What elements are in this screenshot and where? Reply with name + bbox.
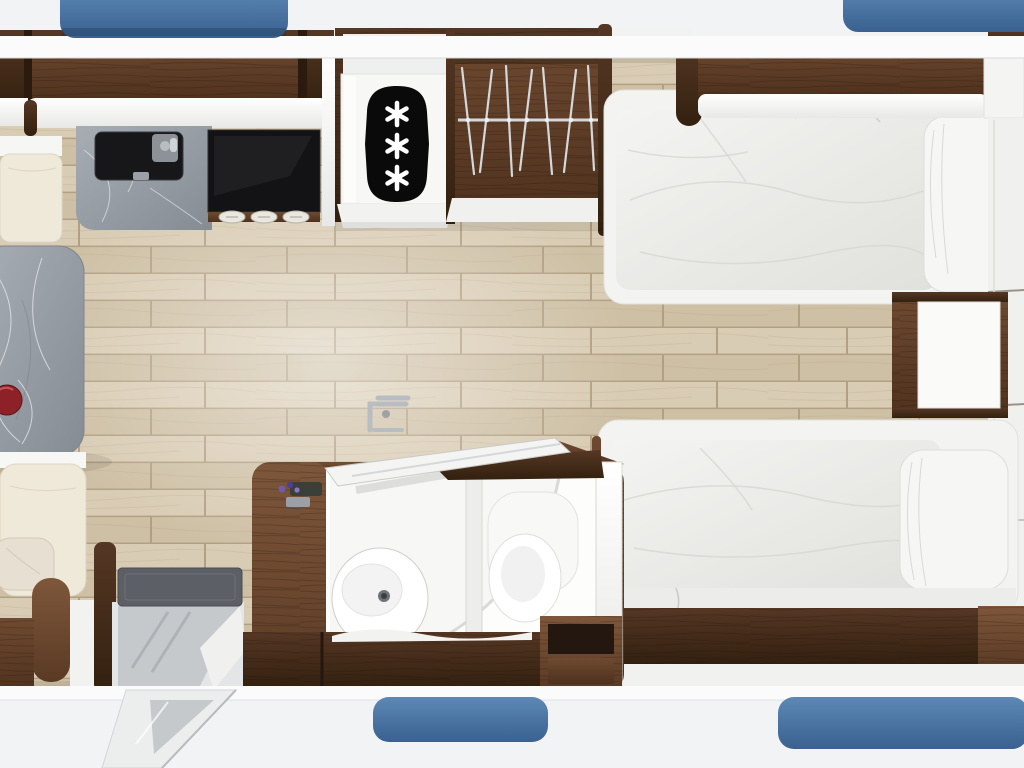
window-top-right (843, 0, 1024, 32)
bench-armrest-wood (32, 578, 70, 682)
wardrobe-bottom-shelf (446, 198, 610, 222)
bed-deck (606, 588, 1016, 608)
nightstand-top (918, 302, 1000, 408)
fascia-wood-cap (24, 100, 37, 136)
bed-bottom (592, 420, 1024, 690)
dinette-bench-top (0, 136, 62, 242)
sink-faucet (152, 134, 178, 162)
bathroom-lower-drawers (243, 629, 543, 688)
bed-bottom-pillow (900, 450, 1008, 590)
cooktop-knobs (219, 211, 309, 223)
bedroom-cabinet-fascia (698, 94, 988, 118)
sink-drainer (133, 172, 149, 180)
storage-box (540, 616, 622, 688)
door-mat (118, 568, 242, 606)
window-bottom-center (373, 697, 548, 742)
caravan-floorplan-render (0, 0, 1024, 768)
entry-white-rim (70, 600, 96, 692)
bed-top (604, 90, 1018, 304)
cooktop (208, 130, 320, 223)
bed-bottom-duvet (610, 440, 940, 592)
nightstand (892, 292, 1008, 418)
cabinet-fascia-left (0, 98, 28, 126)
dinette-table (0, 246, 84, 456)
window-bottom-right (778, 697, 1024, 749)
entry-well (112, 602, 246, 692)
kitchen-counter (76, 126, 212, 230)
kitchen-end-panel (322, 54, 335, 226)
cabinet-fascia (26, 98, 330, 128)
